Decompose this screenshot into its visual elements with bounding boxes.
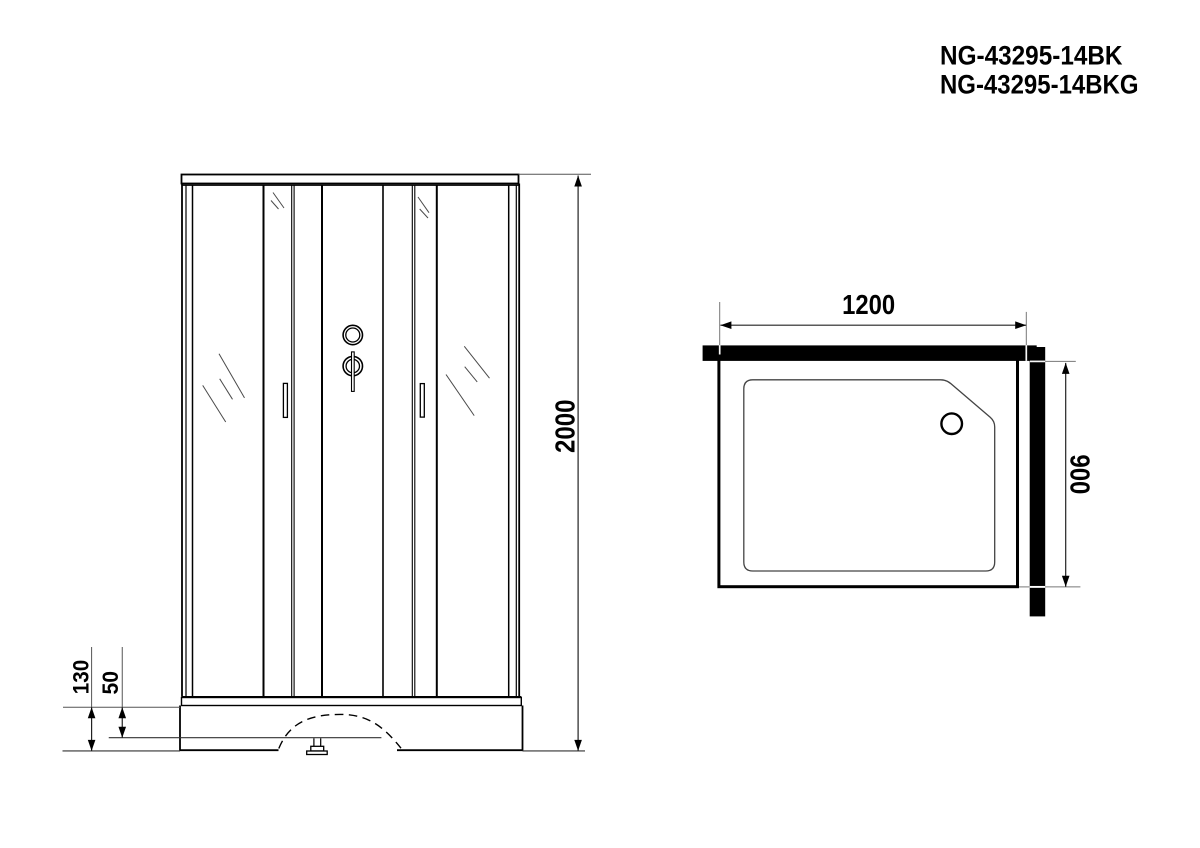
- svg-text:50: 50: [98, 671, 123, 695]
- svg-text:130: 130: [69, 660, 94, 695]
- svg-text:900: 900: [1065, 454, 1096, 494]
- svg-text:1200: 1200: [842, 289, 895, 320]
- svg-text:NG-43295-14BK: NG-43295-14BK: [940, 40, 1123, 70]
- svg-text:2000: 2000: [550, 399, 581, 453]
- svg-text:NG-43295-14BKG: NG-43295-14BKG: [940, 69, 1139, 99]
